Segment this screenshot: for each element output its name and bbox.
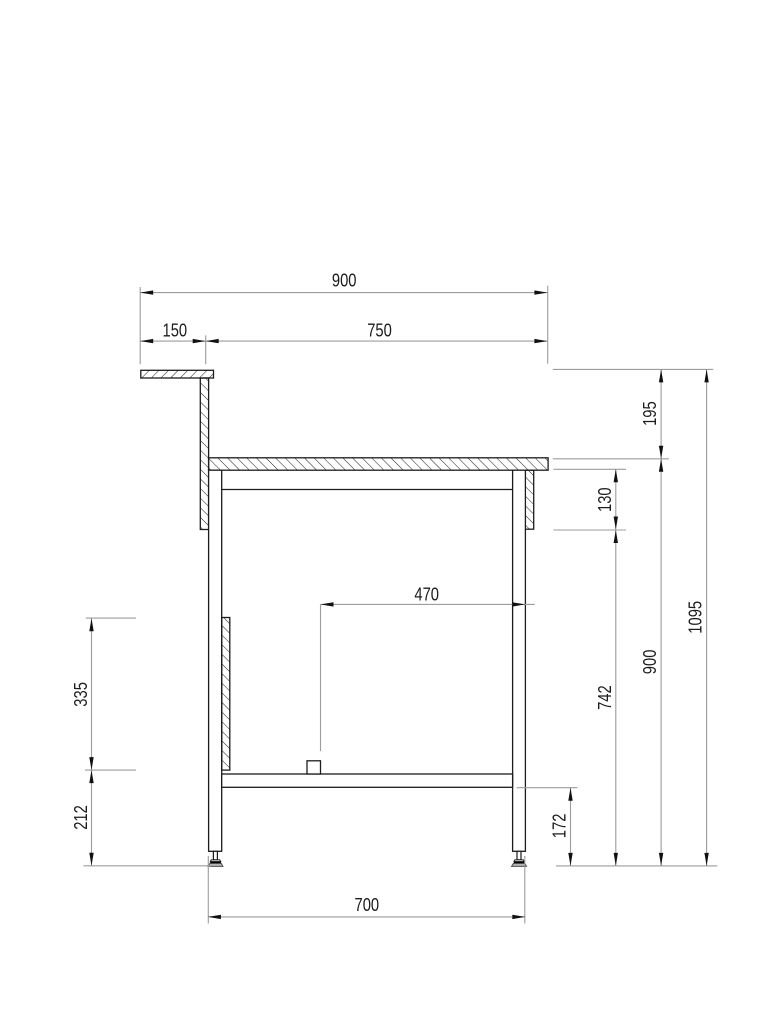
svg-text:130: 130 [595,487,615,512]
svg-text:470: 470 [414,585,439,605]
svg-text:750: 750 [367,320,392,340]
svg-text:150: 150 [163,320,188,340]
svg-text:335: 335 [71,682,91,707]
svg-text:900: 900 [640,650,660,675]
svg-text:195: 195 [640,401,660,426]
svg-text:1095: 1095 [686,601,706,634]
svg-text:212: 212 [71,805,91,830]
svg-text:900: 900 [332,270,357,290]
svg-text:742: 742 [595,685,615,710]
svg-text:700: 700 [355,895,380,915]
svg-text:172: 172 [550,814,570,839]
